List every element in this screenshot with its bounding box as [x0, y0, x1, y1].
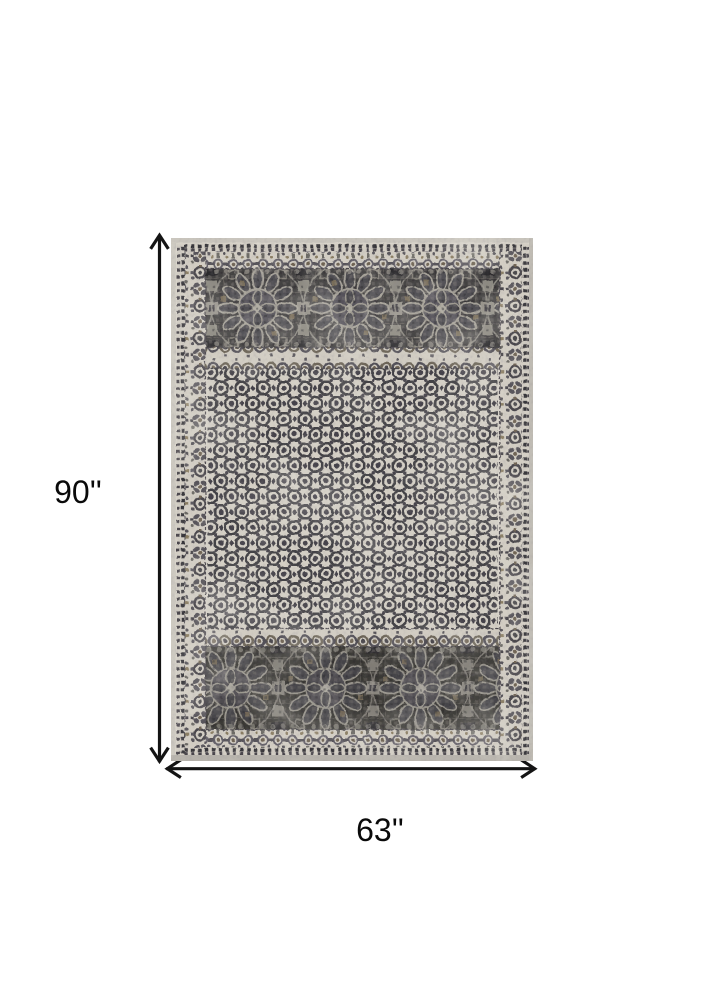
svg-text:63'': 63'' — [356, 812, 404, 848]
svg-text:90'': 90'' — [54, 474, 102, 510]
